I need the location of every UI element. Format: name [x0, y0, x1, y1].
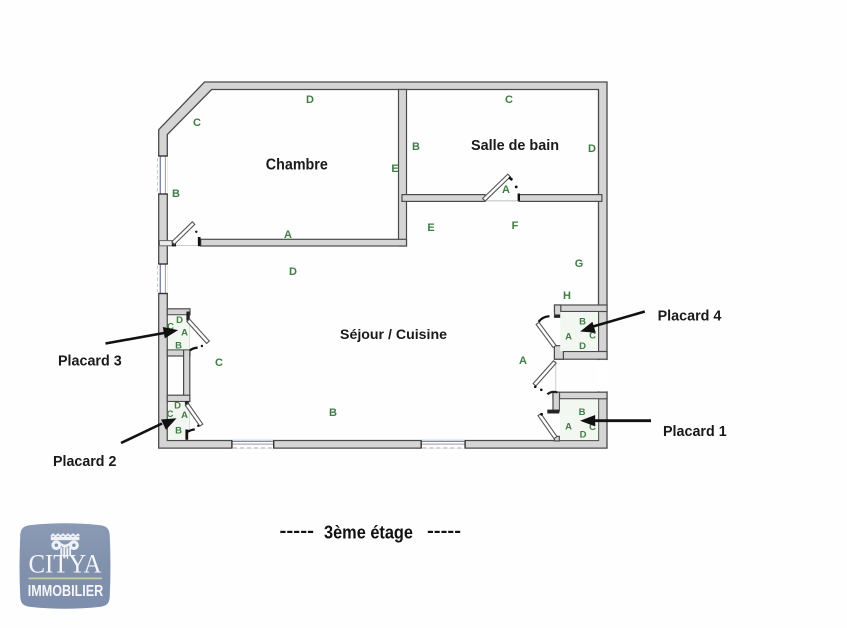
svg-text:E: E	[391, 163, 398, 175]
svg-text:Placard 3: Placard 3	[58, 354, 122, 370]
svg-text:B: B	[172, 188, 180, 200]
svg-text:D: D	[174, 401, 181, 412]
svg-text:Chambre: Chambre	[266, 157, 328, 174]
svg-text:D: D	[588, 143, 596, 155]
svg-text:-----: -----	[280, 520, 315, 541]
svg-text:B: B	[579, 317, 586, 328]
svg-text:-----: -----	[427, 520, 461, 541]
svg-text:C: C	[505, 94, 513, 106]
svg-text:Séjour / Cuisine: Séjour / Cuisine	[340, 326, 447, 342]
svg-text:D: D	[306, 94, 314, 106]
svg-text:Salle de bain: Salle de bain	[471, 138, 559, 154]
svg-text:D: D	[176, 315, 183, 326]
svg-text:D: D	[580, 430, 587, 441]
svg-text:A: A	[502, 184, 510, 196]
svg-text:E: E	[427, 222, 434, 234]
svg-text:A: A	[181, 410, 188, 421]
svg-text:B: B	[175, 426, 182, 437]
svg-text:C: C	[215, 357, 223, 369]
svg-text:D: D	[579, 341, 586, 352]
svg-text:D: D	[289, 266, 297, 278]
svg-text:B: B	[579, 407, 586, 418]
svg-text:A: A	[565, 422, 572, 433]
svg-text:B: B	[175, 341, 182, 352]
svg-text:B: B	[412, 141, 420, 153]
svg-text:Placard 4: Placard 4	[658, 309, 723, 325]
svg-text:3ème étage: 3ème étage	[324, 522, 413, 543]
svg-text:A: A	[519, 355, 527, 367]
svg-text:H: H	[563, 290, 571, 302]
svg-text:A: A	[284, 229, 292, 241]
svg-text:F: F	[512, 220, 519, 232]
svg-text:A: A	[565, 332, 572, 343]
svg-text:Placard 1: Placard 1	[663, 424, 727, 440]
svg-text:G: G	[575, 258, 584, 270]
svg-text:IMMOBILIER: IMMOBILIER	[28, 583, 104, 600]
svg-text:C: C	[193, 117, 201, 129]
svg-text:CITYA: CITYA	[29, 550, 102, 579]
svg-text:Placard 2: Placard 2	[53, 454, 116, 470]
svg-text:A: A	[181, 328, 188, 339]
svg-text:B: B	[329, 407, 337, 419]
svg-text:C: C	[167, 409, 174, 420]
